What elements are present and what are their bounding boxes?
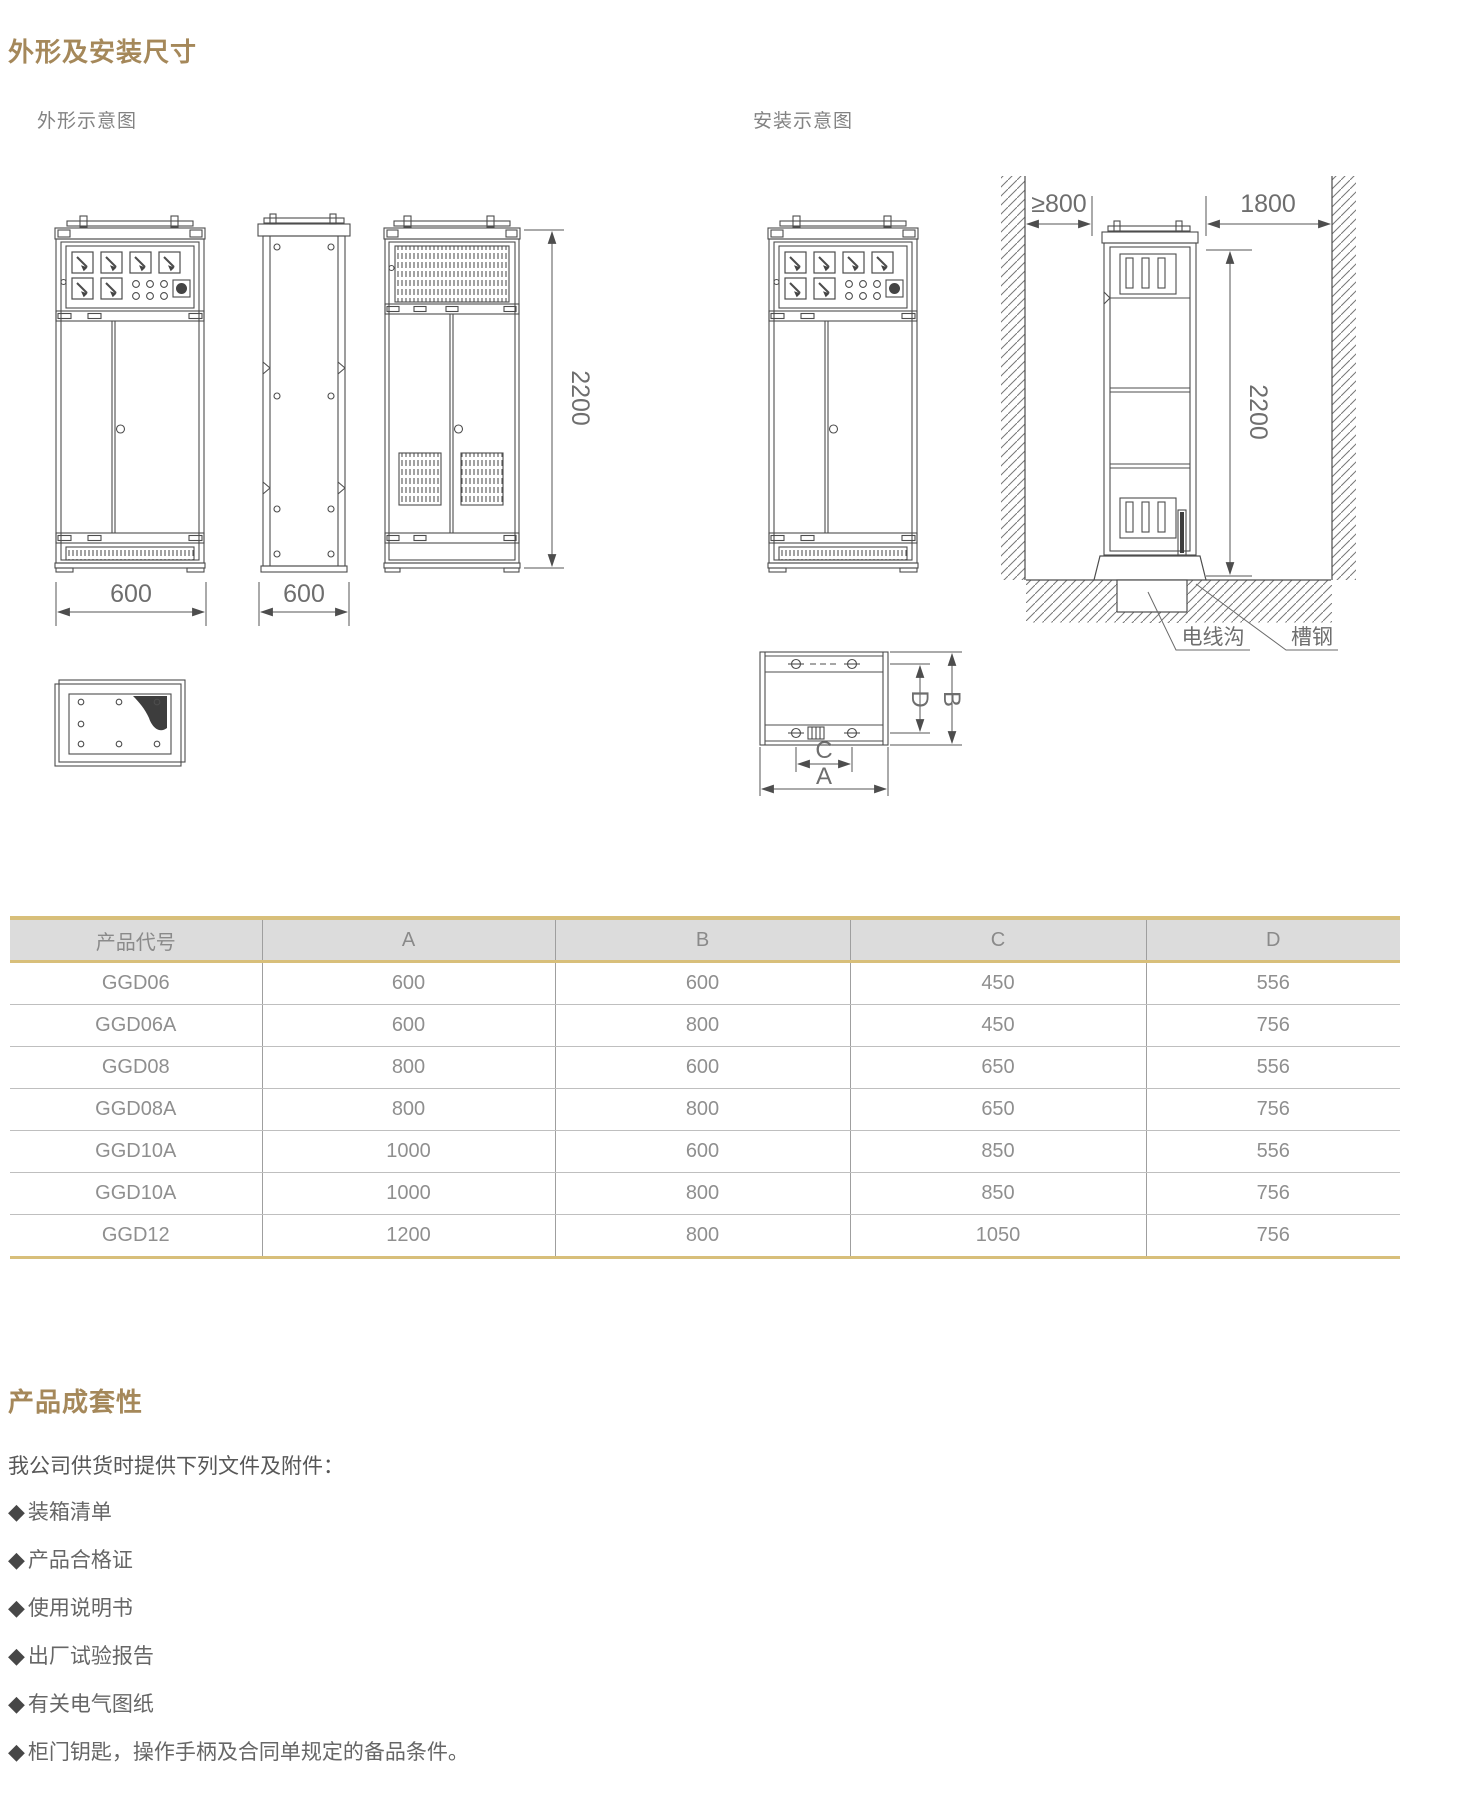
list-item: ◆产品合格证 [8, 1544, 469, 1570]
install-side-view-drawing: 电线沟 槽钢 [1001, 176, 1356, 650]
cell-product-code: GGD08A [10, 1089, 262, 1131]
dimension-label-rear-clearance: ≥800 [1031, 190, 1086, 218]
cell-b: 800 [555, 1215, 850, 1258]
list-item: ◆有关电气图纸 [8, 1688, 469, 1714]
dimension-label-c: C [815, 737, 832, 764]
table-row: GGD06 600 600 450 556 [10, 962, 1400, 1005]
cell-c: 450 [850, 1005, 1146, 1047]
cell-d: 556 [1146, 1047, 1400, 1089]
dimension-rear-clearance: ≥800 [1027, 190, 1092, 236]
cell-d: 756 [1146, 1173, 1400, 1215]
cell-c: 650 [850, 1047, 1146, 1089]
col-header-b: B [555, 918, 850, 962]
table-row: GGD12 1200 800 1050 756 [10, 1215, 1400, 1258]
front-view-drawing [55, 216, 205, 572]
cell-c: 850 [850, 1173, 1146, 1215]
cell-d: 756 [1146, 1215, 1400, 1258]
dimension-install-height: 2200 [1206, 250, 1272, 576]
list-item-label: 柜门钥匙，操作手柄及合同单规定的备品条件。 [28, 1741, 469, 1764]
table-row: GGD08 800 600 650 556 [10, 1047, 1400, 1089]
cell-a: 1000 [262, 1131, 555, 1173]
table-row: GGD08A 800 800 650 756 [10, 1089, 1400, 1131]
dimension-front-width: 600 [56, 580, 206, 626]
col-header-d: D [1146, 918, 1400, 962]
dimension-label-side-depth: 600 [283, 580, 325, 608]
technical-drawings: 600 600 2200 [0, 0, 1481, 830]
list-item: ◆出厂试验报告 [8, 1640, 469, 1666]
channel-steel-label: 槽钢 [1291, 626, 1333, 649]
cell-c: 450 [850, 962, 1146, 1005]
cell-b: 800 [555, 1089, 850, 1131]
table-row: GGD10A 1000 800 850 756 [10, 1173, 1400, 1215]
cell-a: 600 [262, 1005, 555, 1047]
dimension-label-install-height: 2200 [1244, 384, 1272, 440]
diamond-bullet-icon: ◆ [8, 1739, 25, 1764]
dimension-label-d: D [906, 690, 933, 707]
col-header-a: A [262, 918, 555, 962]
dimension-table: 产品代号 A B C D GGD06 600 600 450 556 GGD06… [10, 916, 1400, 1259]
cell-d: 756 [1146, 1005, 1400, 1047]
dimension-label-outline-height: 2200 [566, 370, 594, 426]
cell-c: 1050 [850, 1215, 1146, 1258]
list-item-label: 产品合格证 [28, 1549, 133, 1572]
dimension-front-clearance: 1800 [1206, 190, 1330, 236]
diamond-bullet-icon: ◆ [8, 1643, 25, 1668]
cell-a: 800 [262, 1047, 555, 1089]
cell-c: 650 [850, 1089, 1146, 1131]
kit-intro: 我公司供货时提供下列文件及附件： [8, 1450, 344, 1480]
cable-trench-label: 电线沟 [1182, 626, 1245, 649]
cell-c: 850 [850, 1131, 1146, 1173]
install-front-view-drawing [768, 216, 918, 572]
cell-product-code: GGD10A [10, 1173, 262, 1215]
dimension-side-depth: 600 [259, 580, 349, 626]
cell-a: 1200 [262, 1215, 555, 1258]
list-item-label: 有关电气图纸 [28, 1693, 154, 1716]
cell-b: 800 [555, 1005, 850, 1047]
cell-d: 556 [1146, 962, 1400, 1005]
kit-list: ◆装箱清单 ◆产品合格证 ◆使用说明书 ◆出厂试验报告 ◆有关电气图纸 ◆柜门钥… [8, 1496, 469, 1784]
diamond-bullet-icon: ◆ [8, 1691, 25, 1716]
table-row: GGD06A 600 800 450 756 [10, 1005, 1400, 1047]
cell-a: 600 [262, 962, 555, 1005]
cell-d: 756 [1146, 1089, 1400, 1131]
list-item: ◆使用说明书 [8, 1592, 469, 1618]
top-view-drawing [55, 680, 185, 766]
cell-product-code: GGD10A [10, 1131, 262, 1173]
cell-b: 600 [555, 1131, 850, 1173]
cell-b: 600 [555, 1047, 850, 1089]
cell-product-code: GGD06A [10, 1005, 262, 1047]
table-header-row: 产品代号 A B C D [10, 918, 1400, 962]
dimension-label-front-width: 600 [110, 580, 152, 608]
side-view-drawing [258, 214, 350, 572]
list-item-label: 出厂试验报告 [28, 1645, 154, 1668]
dimension-label-b: B [938, 691, 965, 707]
list-item: ◆柜门钥匙，操作手柄及合同单规定的备品条件。 [8, 1736, 469, 1762]
dimension-label-front-clearance: 1800 [1240, 190, 1296, 218]
col-header-product-code: 产品代号 [10, 918, 262, 962]
dimension-label-a: A [816, 763, 832, 790]
dimension-outline-height: 2200 [524, 230, 594, 568]
cell-product-code: GGD06 [10, 962, 262, 1005]
diamond-bullet-icon: ◆ [8, 1547, 25, 1572]
list-item: ◆装箱清单 [8, 1496, 469, 1522]
cell-b: 800 [555, 1173, 850, 1215]
section-title-completeness: 产品成套性 [8, 1382, 143, 1419]
catalog-page: 外形及安装尺寸 外形示意图 安装示意图 [0, 0, 1481, 1801]
rear-view-drawing [384, 216, 520, 572]
table-row: GGD10A 1000 600 850 556 [10, 1131, 1400, 1173]
cell-product-code: GGD12 [10, 1215, 262, 1258]
cell-a: 1000 [262, 1173, 555, 1215]
list-item-label: 装箱清单 [28, 1501, 112, 1524]
cell-d: 556 [1146, 1131, 1400, 1173]
mounting-plan-drawing: D B C A [760, 652, 965, 796]
diamond-bullet-icon: ◆ [8, 1595, 25, 1620]
diamond-bullet-icon: ◆ [8, 1499, 25, 1524]
cell-b: 600 [555, 962, 850, 1005]
list-item-label: 使用说明书 [28, 1597, 133, 1620]
cell-product-code: GGD08 [10, 1047, 262, 1089]
cell-a: 800 [262, 1089, 555, 1131]
col-header-c: C [850, 918, 1146, 962]
